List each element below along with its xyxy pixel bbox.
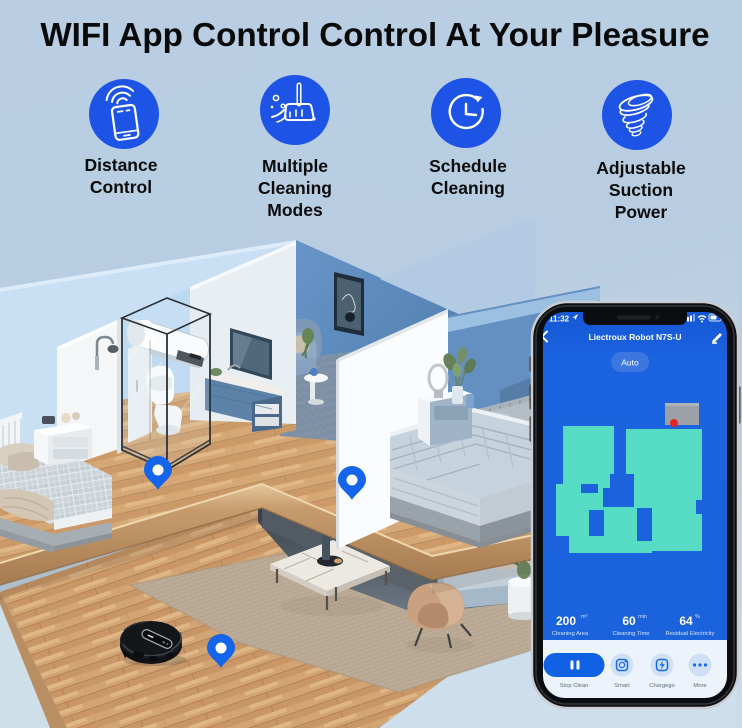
svg-text:Cleaning Area: Cleaning Area — [552, 631, 589, 637]
svg-text:WIFI App Control Control At Yo: WIFI App Control Control At Your Pleasur… — [40, 17, 709, 54]
svg-text:Control: Control — [90, 177, 152, 197]
svg-text:Cleaning: Cleaning — [258, 178, 332, 198]
svg-text:Smart: Smart — [614, 683, 630, 689]
svg-text:min: min — [638, 614, 647, 620]
svg-text:Auto: Auto — [621, 358, 639, 368]
svg-text:Multiple: Multiple — [262, 156, 328, 176]
svg-text:%: % — [695, 614, 700, 620]
svg-text:Modes: Modes — [267, 200, 323, 220]
svg-text:200: 200 — [556, 614, 576, 628]
svg-text:Cleaning Time: Cleaning Time — [612, 631, 649, 637]
svg-text:More: More — [693, 683, 706, 689]
svg-text:Stop Clean: Stop Clean — [560, 683, 589, 689]
svg-text:Chargego: Chargego — [649, 683, 674, 689]
svg-text:Suction: Suction — [609, 180, 673, 200]
svg-text:64: 64 — [679, 614, 693, 628]
svg-text:Power: Power — [615, 202, 668, 222]
svg-text:Adjustable: Adjustable — [596, 158, 686, 178]
svg-text:60: 60 — [622, 614, 636, 628]
svg-text:Schedule: Schedule — [429, 156, 507, 176]
svg-text:Residual Electricity: Residual Electricity — [666, 631, 715, 637]
svg-text:m²: m² — [581, 614, 588, 620]
svg-text:Distance: Distance — [85, 155, 158, 175]
svg-text:Cleaning: Cleaning — [431, 178, 505, 198]
svg-text:Liectroux Robot N7S-U: Liectroux Robot N7S-U — [588, 332, 681, 342]
